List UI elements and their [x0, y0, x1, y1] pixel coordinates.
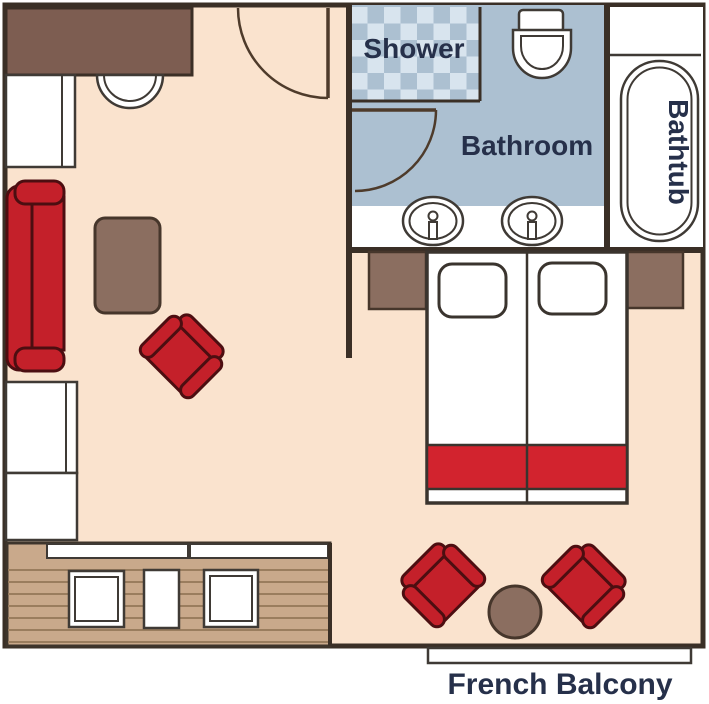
bathtub-label: Bathtub: [663, 99, 694, 205]
sofa-arm-bottom: [15, 348, 64, 371]
floor-plan-canvas: Shower Bathroom Bathtub: [0, 0, 709, 704]
cabinet-lower: [6, 473, 77, 540]
bathtub-zone: Bathtub: [607, 7, 703, 250]
vanity-counter: [346, 206, 607, 250]
french-balcony-label: French Balcony: [447, 668, 672, 701]
nightstand-left: [369, 252, 426, 309]
pillow-right: [539, 263, 606, 314]
deck-threshold-left: [47, 544, 188, 558]
sofa-back: [7, 186, 32, 370]
deck-table: [144, 570, 179, 628]
deck-chair-left-cushion: [75, 577, 118, 621]
deck-chair-right-cushion: [210, 576, 252, 621]
round-table: [489, 586, 541, 638]
sink-right: [502, 197, 562, 245]
desk: [6, 8, 192, 75]
coffee-table: [95, 218, 160, 313]
toilet-tank: [519, 10, 563, 32]
wardrobe-upper: [6, 75, 75, 167]
french-balcony-rail: [428, 648, 691, 663]
deck-threshold-right: [190, 544, 328, 558]
sofa-arm-top: [15, 181, 64, 204]
sofa: [7, 181, 64, 371]
suite-floor-plan: Shower Bathroom Bathtub: [0, 0, 709, 704]
wood-deck: [7, 543, 330, 646]
toilet: [513, 10, 571, 78]
bathroom-label: Bathroom: [461, 130, 593, 161]
nightstand-right: [627, 252, 683, 308]
bathroom-zone: Shower Bathroom: [346, 5, 607, 250]
sofa-seat: [30, 197, 64, 350]
shower-label: Shower: [363, 33, 464, 64]
pillow-left: [439, 264, 506, 317]
sink-left: [403, 197, 463, 245]
